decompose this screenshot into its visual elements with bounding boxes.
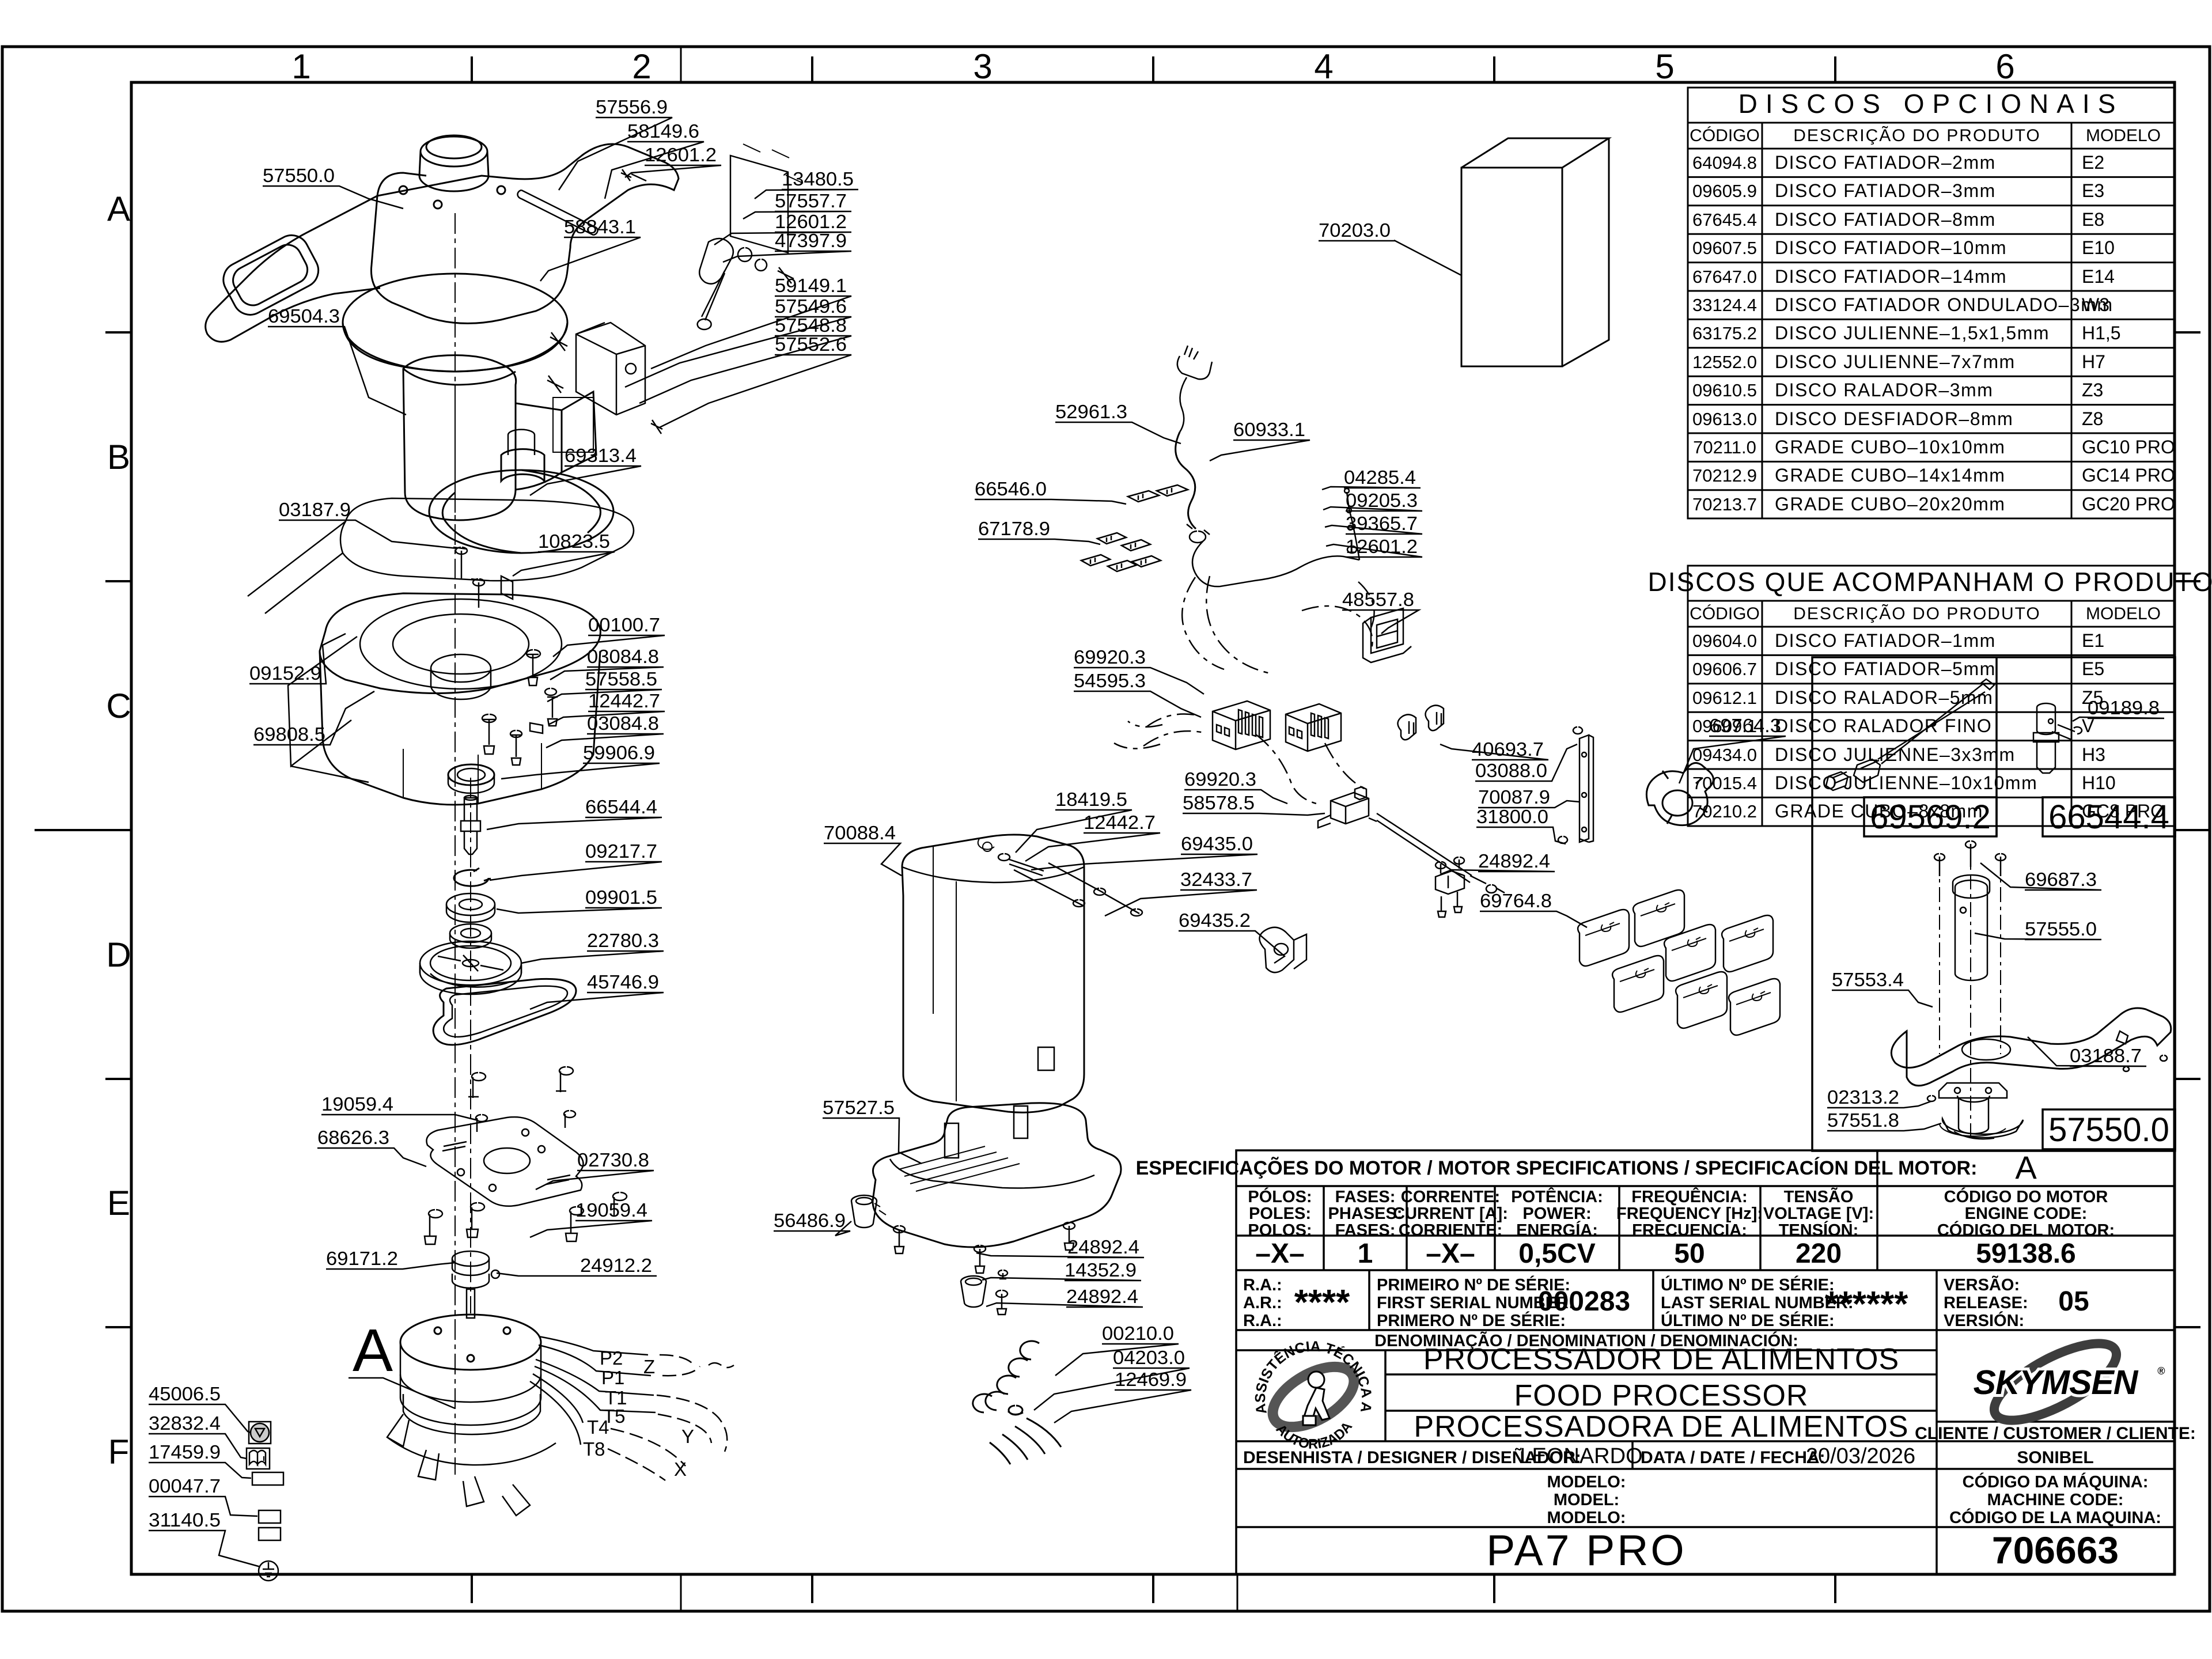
svg-text:59149.1: 59149.1 xyxy=(775,275,847,296)
svg-text:DISCO FATIADOR–3mm: DISCO FATIADOR–3mm xyxy=(1775,180,1996,201)
svg-text:CÓDIGO DE LA MAQUINA:: CÓDIGO DE LA MAQUINA: xyxy=(1949,1508,2161,1527)
svg-text:20/03/2026: 20/03/2026 xyxy=(1806,1444,1915,1468)
svg-text:DESCRIÇÃO DO PRODUTO: DESCRIÇÃO DO PRODUTO xyxy=(1793,604,2041,623)
svg-text:GC14 PRO: GC14 PRO xyxy=(2082,465,2175,486)
svg-text:69569.2: 69569.2 xyxy=(1870,798,1991,836)
svg-text:VERSIÓN:: VERSIÓN: xyxy=(1944,1310,2024,1330)
svg-text:03084.8: 03084.8 xyxy=(587,646,659,667)
svg-text:POLES:: POLES: xyxy=(1249,1205,1311,1223)
svg-text:GRADE CUBO–14x14mm: GRADE CUBO–14x14mm xyxy=(1775,465,2005,486)
svg-text:66544.4: 66544.4 xyxy=(585,796,657,817)
svg-text:66544.4: 66544.4 xyxy=(2048,798,2169,836)
svg-text:FRECUENCIA:: FRECUENCIA: xyxy=(1632,1221,1747,1240)
svg-text:T4: T4 xyxy=(587,1416,609,1438)
svg-text:57549.6: 57549.6 xyxy=(775,296,847,317)
svg-text:40693.7: 40693.7 xyxy=(1472,738,1544,760)
svg-text:32832.4: 32832.4 xyxy=(149,1412,221,1434)
svg-text:17459.9: 17459.9 xyxy=(149,1441,221,1463)
svg-text:54595.3: 54595.3 xyxy=(1074,670,1146,691)
svg-text:B: B xyxy=(107,438,130,476)
svg-text:33124.4: 33124.4 xyxy=(1692,295,1757,315)
svg-text:FREQUENCY [Hz]:: FREQUENCY [Hz]: xyxy=(1616,1205,1763,1223)
svg-text:56486.9: 56486.9 xyxy=(774,1210,846,1231)
svg-text:69687.3: 69687.3 xyxy=(2025,869,2097,890)
svg-text:0,5CV: 0,5CV xyxy=(1518,1238,1595,1269)
svg-text:C: C xyxy=(106,687,131,725)
svg-text:70213.7: 70213.7 xyxy=(1692,494,1757,514)
svg-text:DISCO RALADOR FINO: DISCO RALADOR FINO xyxy=(1775,715,1992,736)
svg-text:09152.9: 09152.9 xyxy=(249,662,321,684)
svg-text:000283: 000283 xyxy=(1538,1286,1630,1317)
svg-text:00210.0: 00210.0 xyxy=(1102,1323,1174,1344)
svg-text:3: 3 xyxy=(973,47,992,86)
svg-text:57553.4: 57553.4 xyxy=(1832,969,1904,990)
svg-text:220: 220 xyxy=(1796,1238,1842,1269)
svg-text:52961.3: 52961.3 xyxy=(1055,401,1127,422)
svg-text:18419.5: 18419.5 xyxy=(1055,789,1127,810)
svg-text:MODELO:: MODELO: xyxy=(1547,1509,1626,1527)
svg-text:45006.5: 45006.5 xyxy=(149,1383,221,1404)
svg-text:POTÊNCIA:: POTÊNCIA: xyxy=(1511,1187,1603,1206)
svg-text:GC20 PRO: GC20 PRO xyxy=(2082,494,2175,514)
svg-text:GC10 PRO: GC10 PRO xyxy=(2082,437,2175,457)
svg-text:MODELO: MODELO xyxy=(2086,604,2161,623)
svg-text:®: ® xyxy=(2157,1365,2165,1377)
svg-text:****: **** xyxy=(1294,1283,1350,1323)
svg-text:MODELO:: MODELO: xyxy=(1547,1473,1626,1491)
svg-text:24892.4: 24892.4 xyxy=(1067,1236,1139,1257)
svg-text:W3: W3 xyxy=(2082,294,2109,315)
svg-text:CÓDIGO: CÓDIGO xyxy=(1690,126,1760,145)
svg-text:SONIBEL: SONIBEL xyxy=(2017,1448,2093,1467)
svg-text:69435.0: 69435.0 xyxy=(1181,833,1253,854)
svg-text:69313.4: 69313.4 xyxy=(565,445,637,466)
svg-text:00047.7: 00047.7 xyxy=(149,1475,221,1497)
svg-text:60933.1: 60933.1 xyxy=(1233,419,1305,440)
svg-text:57555.0: 57555.0 xyxy=(2025,918,2097,940)
svg-text:69504.3: 69504.3 xyxy=(268,305,340,327)
svg-text:09613.0: 09613.0 xyxy=(1692,409,1757,429)
svg-text:09605.9: 09605.9 xyxy=(1692,181,1757,201)
svg-text:57556.9: 57556.9 xyxy=(596,96,668,118)
svg-text:09610.5: 09610.5 xyxy=(1692,380,1757,400)
svg-text:F: F xyxy=(108,1433,130,1471)
svg-text:E14: E14 xyxy=(2082,266,2115,287)
svg-text:2: 2 xyxy=(632,47,651,86)
svg-text:67178.9: 67178.9 xyxy=(978,518,1050,539)
svg-text:H3: H3 xyxy=(2082,744,2105,765)
svg-text:FREQUÊNCIA:: FREQUÊNCIA: xyxy=(1631,1187,1747,1206)
svg-text:CORRENTE:: CORRENTE: xyxy=(1401,1188,1500,1206)
svg-text:48557.8: 48557.8 xyxy=(1342,589,1414,610)
svg-text:70088.4: 70088.4 xyxy=(824,822,896,843)
svg-text:57550.0: 57550.0 xyxy=(263,165,335,186)
svg-text:70203.0: 70203.0 xyxy=(1319,219,1391,241)
svg-text:70210.2: 70210.2 xyxy=(1692,801,1757,821)
svg-text:D: D xyxy=(106,935,131,974)
svg-text:H1,5: H1,5 xyxy=(2082,323,2121,343)
svg-text:GRADE CUBO–10x10mm: GRADE CUBO–10x10mm xyxy=(1775,437,2005,457)
svg-text:5: 5 xyxy=(1655,47,1674,86)
svg-text:GRADE CUBO–20x20mm: GRADE CUBO–20x20mm xyxy=(1775,494,2005,514)
svg-text:14352.9: 14352.9 xyxy=(1065,1259,1137,1281)
svg-text:57552.6: 57552.6 xyxy=(775,334,847,355)
svg-text:24892.4: 24892.4 xyxy=(1066,1286,1138,1307)
svg-text:POWER:: POWER: xyxy=(1522,1205,1591,1223)
svg-text:57551.8: 57551.8 xyxy=(1827,1109,1899,1131)
svg-text:X: X xyxy=(674,1459,687,1480)
svg-text:04285.4: 04285.4 xyxy=(1344,467,1416,488)
svg-text:CÓDIGO DEL MOTOR:: CÓDIGO DEL MOTOR: xyxy=(1937,1220,2115,1240)
svg-text:19059.4: 19059.4 xyxy=(321,1093,393,1115)
svg-text:FOOD PROCESSOR: FOOD PROCESSOR xyxy=(1514,1379,1809,1412)
svg-text:19059.4: 19059.4 xyxy=(575,1199,647,1221)
svg-text:DESCRIÇÃO DO PRODUTO: DESCRIÇÃO DO PRODUTO xyxy=(1793,126,2041,145)
svg-text:DISCO RALADOR–5mm: DISCO RALADOR–5mm xyxy=(1775,687,1993,708)
svg-text:CORRIENTE:: CORRIENTE: xyxy=(1399,1221,1502,1240)
svg-text:A: A xyxy=(107,190,130,228)
svg-text:70212.9: 70212.9 xyxy=(1692,465,1757,486)
svg-text:09612.1: 09612.1 xyxy=(1692,688,1757,708)
svg-text:6: 6 xyxy=(1995,47,2014,86)
svg-text:70015.4: 70015.4 xyxy=(1692,773,1757,793)
svg-text:31140.5: 31140.5 xyxy=(149,1509,221,1531)
svg-text:A: A xyxy=(2015,1149,2037,1185)
svg-text:DISCO FATIADOR–14mm: DISCO FATIADOR–14mm xyxy=(1775,266,2007,287)
svg-text:12442.7: 12442.7 xyxy=(588,690,660,711)
svg-text:E5: E5 xyxy=(2082,658,2104,679)
svg-text:Z3: Z3 xyxy=(2082,380,2103,400)
svg-text:CÓDIGO DA MÁQUINA:: CÓDIGO DA MÁQUINA: xyxy=(1963,1472,2149,1491)
svg-text:CÓDIGO DO MOTOR: CÓDIGO DO MOTOR xyxy=(1944,1187,2108,1206)
svg-text:ENGINE CODE:: ENGINE CODE: xyxy=(1965,1205,2088,1223)
svg-text:DISCO JULIENNE–7x7mm: DISCO JULIENNE–7x7mm xyxy=(1775,351,2016,372)
svg-text:03084.8: 03084.8 xyxy=(587,713,659,734)
svg-text:A.R.:: A.R.: xyxy=(1243,1294,1282,1312)
svg-text:05: 05 xyxy=(2058,1286,2089,1317)
svg-text:4: 4 xyxy=(1314,47,1333,86)
svg-text:DISCOS QUE ACOMPANHAM O PR: DISCOS QUE ACOMPANHAM O PRODUTO xyxy=(1648,567,2212,597)
svg-text:DISCO FATIADOR–8mm: DISCO FATIADOR–8mm xyxy=(1775,209,1996,230)
svg-text:TENSÃO: TENSÃO xyxy=(1784,1187,1854,1206)
svg-text:09607.5: 09607.5 xyxy=(1692,238,1757,258)
svg-text:VOLTAGE [V]:: VOLTAGE [V]: xyxy=(1763,1205,1874,1223)
svg-text:MACHINE CODE:: MACHINE CODE: xyxy=(1987,1491,2124,1509)
svg-text:69435.2: 69435.2 xyxy=(1179,910,1251,931)
svg-text:64094.8: 64094.8 xyxy=(1692,153,1757,173)
svg-text:03187.9: 03187.9 xyxy=(279,499,351,520)
svg-text:24912.2: 24912.2 xyxy=(580,1255,652,1276)
svg-text:PA7 PRO: PA7 PRO xyxy=(1486,1526,1687,1574)
svg-text:57550.0: 57550.0 xyxy=(2048,1111,2169,1149)
svg-text:67647.0: 67647.0 xyxy=(1692,267,1757,287)
svg-text:RELEASE:: RELEASE: xyxy=(1944,1294,2028,1312)
svg-text:ENERGÍA:: ENERGÍA: xyxy=(1516,1220,1598,1240)
svg-text:R.A.:: R.A.: xyxy=(1243,1276,1282,1294)
svg-text:69171.2: 69171.2 xyxy=(326,1248,398,1269)
svg-text:50: 50 xyxy=(1674,1238,1705,1269)
svg-text:H7: H7 xyxy=(2082,351,2105,372)
svg-text:DISCO FATIADOR–5mm: DISCO FATIADOR–5mm xyxy=(1775,658,1996,679)
svg-text:09901.5: 09901.5 xyxy=(585,887,657,908)
svg-text:63175.2: 63175.2 xyxy=(1692,323,1757,343)
svg-text:09606.7: 09606.7 xyxy=(1692,659,1757,679)
svg-text:MODEL:: MODEL: xyxy=(1554,1491,1619,1509)
svg-text:69764.3: 69764.3 xyxy=(1709,715,1781,736)
svg-text:03088.0: 03088.0 xyxy=(1475,760,1547,781)
svg-text:FASES:: FASES: xyxy=(1335,1188,1396,1206)
svg-text:P2: P2 xyxy=(600,1347,623,1369)
svg-text:1: 1 xyxy=(291,47,310,86)
svg-text:E: E xyxy=(107,1184,130,1222)
svg-text:57557.7: 57557.7 xyxy=(775,190,847,211)
svg-text:TENSÍON:: TENSÍON: xyxy=(1779,1220,1859,1240)
svg-text:58843.1: 58843.1 xyxy=(564,216,636,237)
svg-text:–X–: –X– xyxy=(1255,1238,1304,1269)
svg-text:–X–: –X– xyxy=(1426,1238,1475,1269)
svg-text:POLOS:: POLOS: xyxy=(1248,1221,1312,1240)
svg-text:DISCO FATIADOR–2mm: DISCO FATIADOR–2mm xyxy=(1775,152,1996,173)
svg-text:02313.2: 02313.2 xyxy=(1827,1086,1899,1108)
svg-text:PÓLOS:: PÓLOS: xyxy=(1248,1187,1312,1206)
svg-text:DISCO RALADOR–3mm: DISCO RALADOR–3mm xyxy=(1775,380,1993,400)
svg-text:FASES:: FASES: xyxy=(1335,1221,1396,1240)
svg-text:LEONARDO: LEONARDO xyxy=(1520,1444,1642,1468)
svg-text:57548.8: 57548.8 xyxy=(775,315,847,336)
svg-text:09189.8: 09189.8 xyxy=(2088,697,2160,718)
svg-text:66546.0: 66546.0 xyxy=(975,478,1047,499)
svg-text:02730.8: 02730.8 xyxy=(577,1149,649,1171)
svg-text:24892.4: 24892.4 xyxy=(1478,850,1550,872)
svg-text:T8: T8 xyxy=(583,1438,605,1460)
svg-text:CURRENT [A]:: CURRENT [A]: xyxy=(1393,1205,1508,1223)
svg-text:12601.2: 12601.2 xyxy=(775,211,847,232)
svg-text:57527.5: 57527.5 xyxy=(823,1097,895,1118)
svg-text:PHASES:: PHASES: xyxy=(1328,1205,1403,1223)
svg-text:PRIMERO Nº DE SÉRIE:: PRIMERO Nº DE SÉRIE: xyxy=(1377,1310,1566,1330)
svg-text:45746.9: 45746.9 xyxy=(587,971,659,993)
svg-text:32433.7: 32433.7 xyxy=(1180,869,1252,890)
svg-text:DATA / DATE / FECHA:: DATA / DATE / FECHA: xyxy=(1641,1448,1825,1467)
svg-text:DISCO JULIENNE–10x10mm: DISCO JULIENNE–10x10mm xyxy=(1775,772,2037,793)
svg-text:DISCO JULIENNE–3x3mm: DISCO JULIENNE–3x3mm xyxy=(1775,744,2016,765)
svg-text:70211.0: 70211.0 xyxy=(1693,437,1756,457)
svg-text:E2: E2 xyxy=(2082,152,2104,173)
svg-text:47397.9: 47397.9 xyxy=(775,230,847,251)
svg-text:ÚLTIMO Nº DE SÉRIE:: ÚLTIMO Nº DE SÉRIE: xyxy=(1661,1275,1835,1294)
svg-text:R.A.:: R.A.: xyxy=(1243,1312,1282,1330)
svg-text:70087.9: 70087.9 xyxy=(1478,786,1550,808)
svg-text:H10: H10 xyxy=(2082,772,2116,793)
svg-text:VERSÃO:: VERSÃO: xyxy=(1944,1275,2020,1294)
svg-text:E10: E10 xyxy=(2082,237,2115,258)
svg-text:Z8: Z8 xyxy=(2082,408,2103,429)
svg-text:CLIENTE / CUSTOMER / CLIENTE:: CLIENTE / CUSTOMER / CLIENTE: xyxy=(1915,1424,2196,1443)
svg-text:E8: E8 xyxy=(2082,209,2104,230)
svg-text:DISCOS OPCIONAIS: DISCOS OPCIONAIS xyxy=(1738,89,2124,119)
svg-text:ÚLTIMO Nº DE SÉRIE:: ÚLTIMO Nº DE SÉRIE: xyxy=(1661,1310,1835,1330)
svg-text:PROCESSADOR DE ALIMENTOS: PROCESSADOR DE ALIMENTOS xyxy=(1423,1343,1899,1376)
svg-text:22780.3: 22780.3 xyxy=(587,930,659,951)
svg-text:Z: Z xyxy=(643,1356,655,1377)
svg-text:69920.3: 69920.3 xyxy=(1074,646,1146,668)
svg-text:DISCO DESFIADOR–8mm: DISCO DESFIADOR–8mm xyxy=(1775,408,2013,429)
svg-text:Y: Y xyxy=(681,1426,694,1447)
svg-text:12442.7: 12442.7 xyxy=(1084,812,1156,833)
svg-text:57558.5: 57558.5 xyxy=(585,668,657,690)
svg-text:DISCO FATIADOR ONDULADO–3mm: DISCO FATIADOR ONDULADO–3mm xyxy=(1775,294,2113,315)
svg-text:58149.6: 58149.6 xyxy=(627,120,699,142)
svg-text:09604.0: 09604.0 xyxy=(1692,631,1757,651)
svg-text:******: ****** xyxy=(1825,1285,1909,1324)
svg-text:DISCO FATIADOR–10mm: DISCO FATIADOR–10mm xyxy=(1775,237,2007,258)
svg-text:SKYMSEN: SKYMSEN xyxy=(1974,1363,2139,1402)
svg-text:CÓDIGO: CÓDIGO xyxy=(1690,604,1760,623)
svg-text:DISCO JULIENNE–1,5x1,5mm: DISCO JULIENNE–1,5x1,5mm xyxy=(1775,323,2050,343)
svg-text:69920.3: 69920.3 xyxy=(1184,768,1256,790)
svg-text:706663: 706663 xyxy=(1992,1529,2119,1571)
svg-text:59138.6: 59138.6 xyxy=(1976,1238,2076,1269)
svg-text:12552.0: 12552.0 xyxy=(1692,352,1757,372)
svg-text:1: 1 xyxy=(1358,1238,1373,1269)
svg-text:09217.7: 09217.7 xyxy=(585,840,657,862)
svg-text:ESPECIFICAÇÕES DO MOTOR / MOTO: ESPECIFICAÇÕES DO MOTOR / MOTOR SPECIFIC… xyxy=(1136,1157,1978,1179)
svg-text:12469.9: 12469.9 xyxy=(1115,1369,1187,1390)
svg-text:12601.2: 12601.2 xyxy=(645,144,717,165)
svg-text:MODELO: MODELO xyxy=(2086,126,2161,145)
svg-text:04203.0: 04203.0 xyxy=(1113,1347,1185,1368)
svg-text:E1: E1 xyxy=(2082,630,2104,651)
svg-text:58578.5: 58578.5 xyxy=(1183,792,1255,813)
svg-text:67645.4: 67645.4 xyxy=(1692,210,1757,230)
svg-text:PROCESSADORA DE ALIMENTOS: PROCESSADORA DE ALIMENTOS xyxy=(1414,1410,1908,1444)
svg-text:E3: E3 xyxy=(2082,180,2104,201)
svg-text:31800.0: 31800.0 xyxy=(1476,806,1548,827)
svg-text:A: A xyxy=(353,1317,393,1384)
svg-text:68626.3: 68626.3 xyxy=(317,1127,389,1148)
svg-text:P1: P1 xyxy=(601,1367,624,1388)
svg-text:DISCO FATIADOR–1mm: DISCO FATIADOR–1mm xyxy=(1775,630,1996,651)
